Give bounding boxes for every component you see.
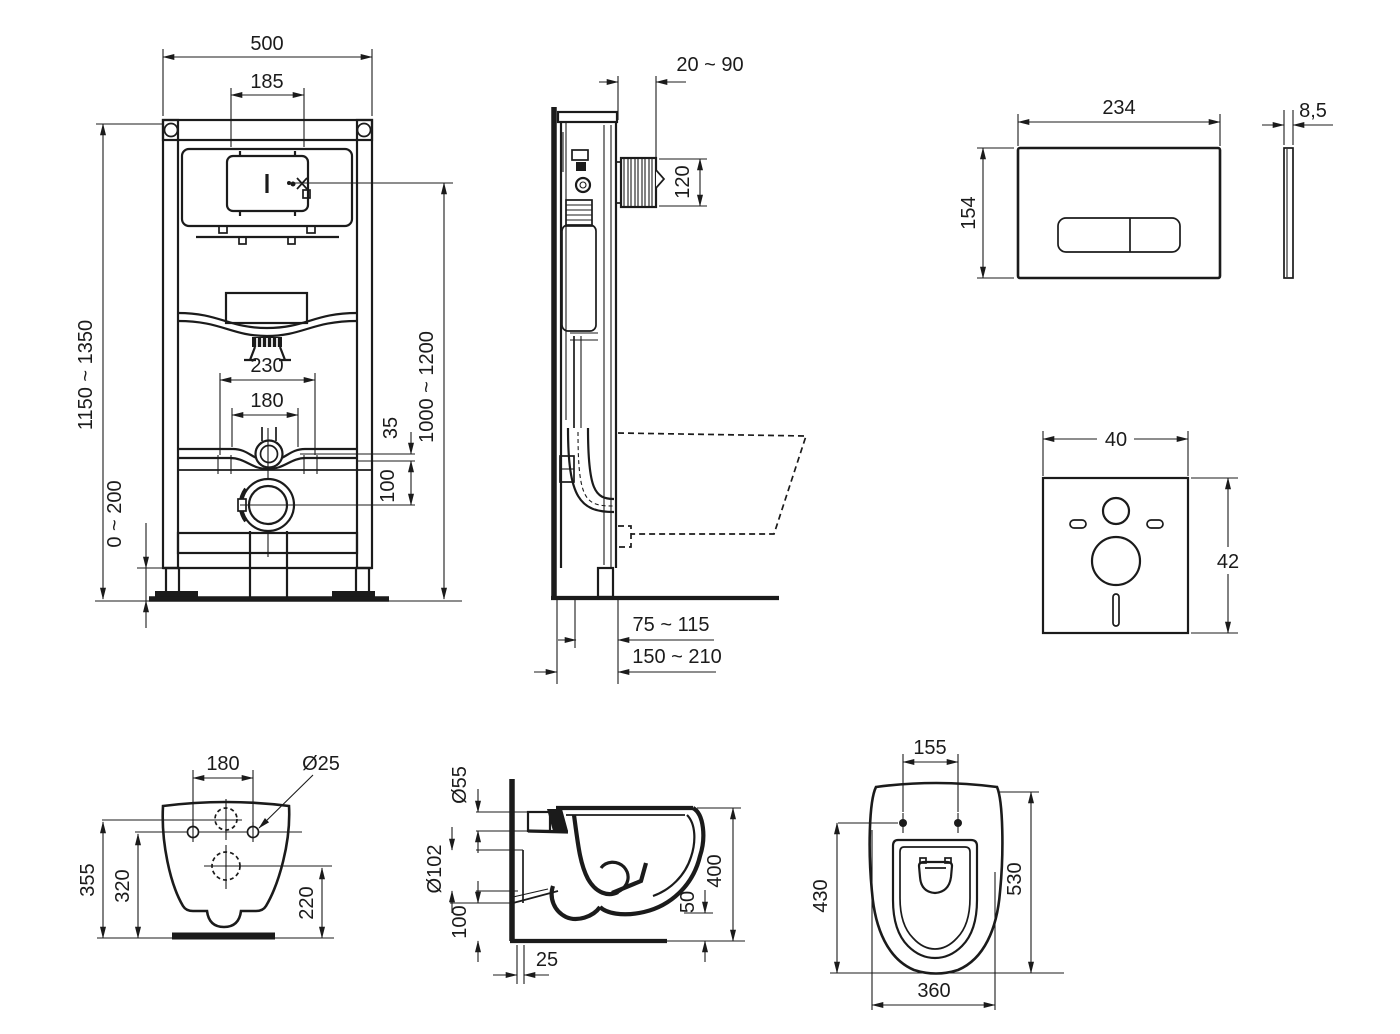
dim-fixings-inner: 180	[232, 390, 298, 447]
frame-front-view: 500 185 1150 ~ 1350 1000 ~ 1200 230	[75, 33, 462, 628]
dim-label: 100	[449, 905, 471, 938]
dim-label: 75 ~ 115	[633, 614, 710, 636]
dim-outlet-gap: 100	[377, 461, 411, 505]
technical-drawing-canvas: 500 185 1150 ~ 1350 1000 ~ 1200 230	[0, 0, 1400, 1034]
dim-mat-width: 40	[1043, 429, 1188, 476]
dim-mat-height: 42	[1191, 478, 1239, 633]
dim-pan-fixing-height: 320	[112, 834, 138, 938]
dim-pan-fixing-spread: 180	[193, 753, 253, 826]
dim-seat-hole-dia: Ø55	[449, 766, 478, 853]
frame-side-view: 20 ~ 90 120 75 ~ 115 150 ~ 210	[534, 54, 806, 684]
pan-rear-view: 180 Ø25 355 320 220	[77, 753, 340, 938]
dim-label: Ø102	[424, 845, 446, 894]
dim-pan-fixing-hole: Ø25	[259, 753, 340, 828]
dim-label: 220	[296, 886, 318, 919]
dim-label: 180	[206, 753, 239, 775]
flush-plate-structure	[1018, 148, 1293, 278]
pan-side-structure	[450, 779, 745, 941]
sound-mat-structure	[1043, 478, 1188, 633]
dim-label: 1150 ~ 1350	[75, 320, 97, 430]
dim-label: 400	[704, 854, 726, 887]
dim-label: 355	[77, 863, 99, 896]
dim-outlet-height: 100	[449, 881, 478, 962]
dim-plate-thickness: 8,5	[1262, 100, 1333, 145]
dim-plate-height: 154	[958, 148, 1014, 278]
dim-label: 500	[250, 33, 283, 55]
dim-pan-total-height: 355	[77, 822, 103, 938]
pan-side-view: Ø55 Ø102 100 25 50 400	[424, 766, 745, 984]
dim-label: 180	[250, 390, 283, 412]
dim-seat-fixing-spread: 155	[903, 737, 958, 812]
dim-fixing-to-front: 430	[810, 823, 898, 973]
dim-label: 120	[672, 165, 694, 198]
dim-label: 8,5	[1299, 100, 1327, 122]
dim-pan-depth: 530	[999, 792, 1039, 973]
flush-plate-view: 234 154 8,5	[958, 97, 1333, 278]
dim-wall-gap: 25	[493, 945, 558, 984]
pan-top-structure	[830, 783, 1064, 974]
dim-label: Ø25	[302, 753, 340, 775]
dim-label: 1000 ~ 1200	[416, 331, 438, 443]
dim-panel-height: 1000 ~ 1200	[416, 183, 444, 599]
dim-label: 320	[112, 869, 134, 902]
dim-bend-height: 120	[659, 159, 707, 206]
technical-drawing-svg: 500 185 1150 ~ 1350 1000 ~ 1200 230	[0, 0, 1400, 1034]
dim-label: 430	[810, 879, 832, 912]
dim-label: 230	[250, 355, 283, 377]
dim-label: 40	[1105, 429, 1127, 451]
dim-supply-gap: 35	[380, 417, 411, 454]
dim-plate-width: 234	[1018, 97, 1220, 146]
sound-mat-view: 40 42	[1043, 429, 1239, 633]
dim-foot-adjust: 0 ~ 200	[104, 480, 164, 628]
dim-label: 150 ~ 210	[632, 646, 722, 668]
dim-label: 20 ~ 90	[676, 54, 743, 76]
dim-flush-opening: 185	[231, 71, 304, 147]
dim-label: 155	[913, 737, 946, 759]
dim-outlet-axis: 75 ~ 115	[557, 600, 714, 684]
dim-label: 530	[1004, 862, 1026, 895]
dim-label: Ø55	[449, 766, 471, 804]
dim-label: 35	[380, 417, 402, 439]
dim-label: 100	[377, 469, 399, 502]
dim-label: 0 ~ 200	[104, 480, 126, 547]
dim-label: 185	[250, 71, 283, 93]
dim-clearance: 50	[677, 890, 713, 962]
dim-outlet-dia: Ø102	[424, 827, 452, 913]
dim-wall-offset: 20 ~ 90	[599, 54, 744, 158]
dim-label: 42	[1217, 551, 1239, 573]
dim-label: 50	[677, 891, 699, 913]
pan-top-view: 155 430 530 360	[810, 737, 1064, 1010]
dim-frame-depth: 150 ~ 210	[534, 646, 722, 672]
dim-label: 25	[536, 949, 558, 971]
dim-label: 154	[958, 196, 980, 229]
dim-pan-outlet-height: 220	[296, 868, 322, 938]
dim-label: 360	[917, 980, 950, 1002]
dim-label: 234	[1102, 97, 1135, 119]
